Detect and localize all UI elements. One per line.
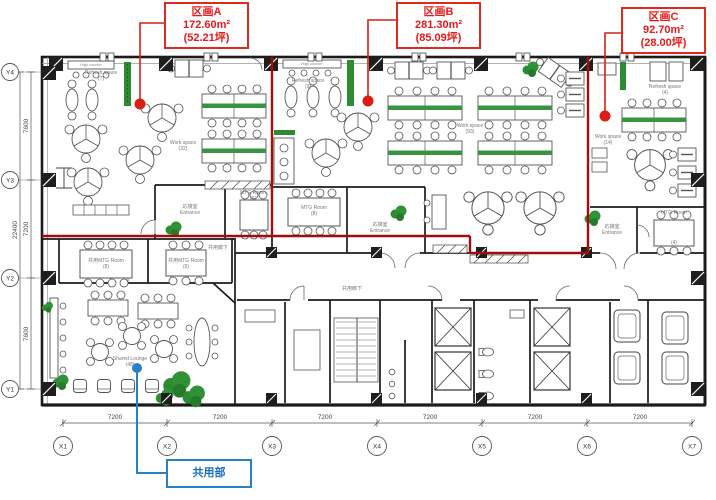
axis-x4: X4 — [373, 444, 381, 451]
partition-a-anchor-dot — [135, 99, 146, 110]
common-mtg1-label: 共用MTG Room — [88, 257, 124, 264]
zone-b-entrance-label: Entrance — [370, 228, 390, 234]
axis-y2: Y2 — [6, 276, 14, 283]
common-area-callout: 共用部 — [166, 459, 252, 488]
zone-a-high-counter-label: High counter — [80, 63, 102, 67]
axis-x1: X1 — [59, 444, 67, 451]
dim-y2-y1: 7600 — [23, 326, 30, 341]
axis-x2: X2 — [163, 444, 171, 451]
partition-c-tsubo: (28.00坪) — [623, 37, 704, 50]
zone-c-mtg-label: MTG Room — [661, 210, 687, 216]
partition-c-callout: 区画C 92.70m² (28.00坪) — [621, 7, 706, 54]
common-area-furniture — [42, 241, 218, 407]
common-corridor-label-2: 共用廊下 — [342, 285, 362, 292]
zone-c-work-count: (14) — [604, 140, 613, 146]
zone-b-refresh-count: (9) — [305, 84, 311, 90]
zone-a-furniture — [56, 60, 268, 239]
common-mtg1-count: (8) — [103, 264, 109, 270]
axis-x3: X3 — [268, 444, 276, 451]
dim-y4-y3: 7600 — [23, 118, 30, 133]
partition-a-tsubo: (52.21坪) — [166, 32, 247, 45]
common-mtg2-label: 共用MTG Room — [168, 257, 204, 264]
axis-x6: X6 — [583, 444, 591, 451]
partition-a-area: 172.60m² — [166, 19, 247, 32]
partition-a-callout: 区画A 172.60m² (52.21坪) — [164, 2, 249, 49]
partition-c-area: 92.70m² — [623, 24, 704, 37]
zone-c-mtg-count: (4) — [671, 240, 677, 246]
dim-x6-x7: 7200 — [633, 414, 648, 421]
zone-c-furniture — [585, 62, 697, 255]
common-area-anchor-dot — [132, 363, 142, 373]
floor-plan-page: High counter Refresh space (7) Work spac… — [0, 0, 716, 500]
common-corridor-label-1: 共用廊下 — [208, 244, 228, 251]
dim-y-total: 22400 — [12, 221, 19, 239]
zone-c-reception-label: 応接室 — [604, 223, 619, 230]
axis-y3: Y3 — [6, 178, 14, 185]
partition-b-area: 281.30m² — [398, 19, 479, 32]
dim-x5-x6: 7200 — [528, 414, 543, 421]
partition-b-callout: 区画B 281.30m² (85.09坪) — [396, 2, 481, 49]
axis-x7: X7 — [688, 444, 696, 451]
dim-y3-y2: 7200 — [23, 221, 30, 236]
zone-b-high-counter-label: High counter — [301, 62, 323, 66]
zone-b-work-count: (93) — [466, 129, 475, 135]
partition-c-anchor-dot — [600, 111, 611, 122]
partition-a-name: 区画A — [166, 6, 247, 19]
partition-c-name: 区画C — [623, 11, 704, 24]
common-mtg2-count: (6) — [183, 264, 189, 270]
zone-a-reception-label: 応接室 — [182, 203, 197, 210]
zone-b-mtg-count: (8) — [311, 211, 317, 217]
zone-c-refresh-count: (4) — [662, 90, 668, 96]
zone-a-work-count: (32) — [179, 146, 188, 152]
zone-b-reception-label: 応接室 — [372, 221, 387, 228]
partition-b-tsubo: (85.09坪) — [398, 32, 479, 45]
zone-a-refresh-count: (7) — [98, 76, 104, 82]
axis-y4: Y4 — [6, 70, 14, 77]
building-core — [245, 308, 688, 400]
axis-x5: X5 — [478, 444, 486, 451]
dim-x1-x2: 7200 — [108, 414, 123, 421]
dim-x2-x3: 7200 — [213, 414, 228, 421]
axis-y1: Y1 — [6, 387, 14, 394]
common-area-name: 共用部 — [168, 467, 250, 480]
floor-plan-drawing: High counter Refresh space (7) Work spac… — [0, 0, 716, 500]
zone-a-entrance-label: Entrance — [180, 210, 200, 216]
partition-b-name: 区画B — [398, 6, 479, 19]
dim-x3-x4: 7200 — [318, 414, 333, 421]
partition-b-anchor-dot — [363, 96, 374, 107]
zone-c-entrance-label: Entrance — [602, 230, 622, 236]
dim-x4-x5: 7200 — [423, 414, 438, 421]
zone-a-mtg-count: (6) — [250, 196, 256, 202]
